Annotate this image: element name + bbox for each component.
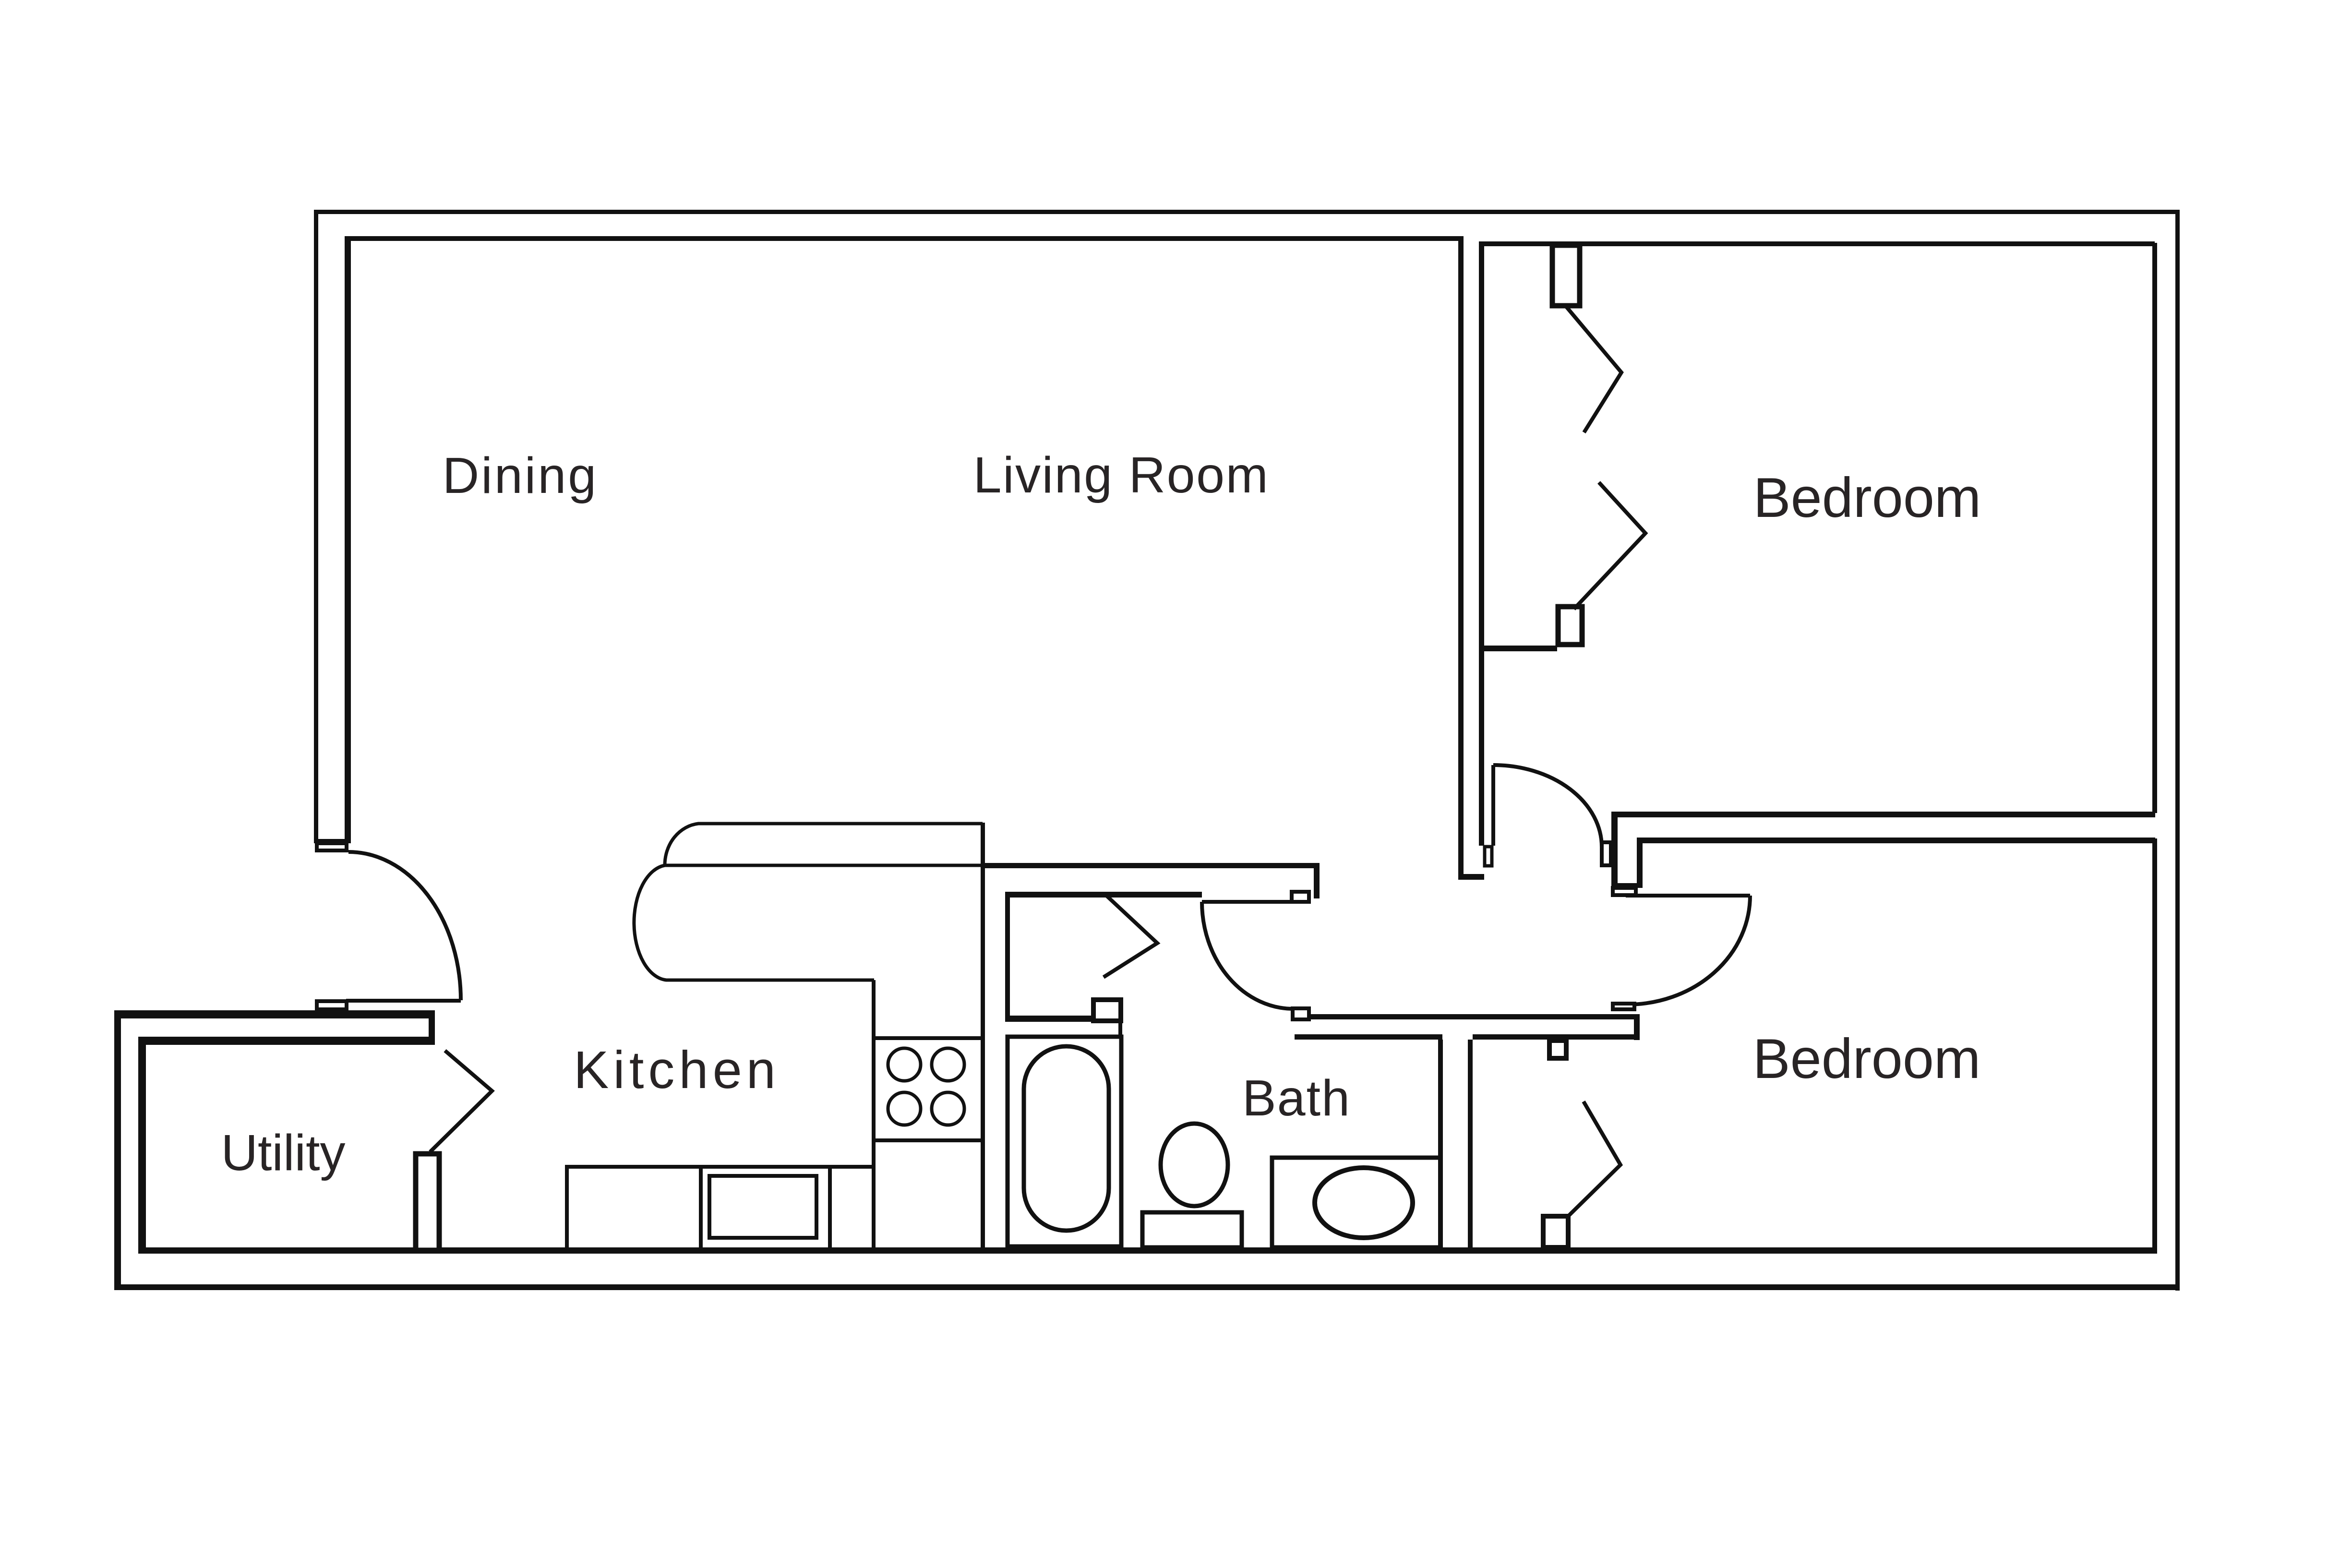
svg-text:Utility: Utility [221,1125,345,1181]
svg-text:Dining: Dining [443,447,599,504]
svg-text:Bath: Bath [1242,1070,1351,1126]
svg-text:Living Room: Living Room [973,447,1270,503]
svg-text:Bedroom: Bedroom [1753,466,1981,529]
svg-text:Bedroom: Bedroom [1753,1027,1981,1090]
svg-text:Kitchen: Kitchen [574,1041,780,1100]
